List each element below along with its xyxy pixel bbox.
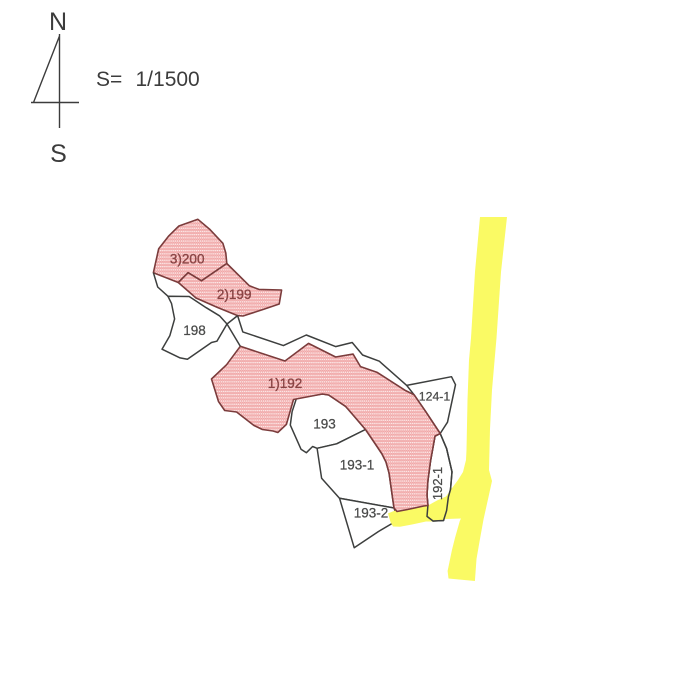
svg-text:124-1: 124-1 xyxy=(419,390,451,404)
svg-text:2)199: 2)199 xyxy=(217,287,252,302)
svg-text:198: 198 xyxy=(183,323,206,338)
svg-text:193: 193 xyxy=(313,417,336,432)
svg-text:192-1: 192-1 xyxy=(430,467,445,500)
svg-text:S: S xyxy=(50,140,67,168)
svg-text:S=1/1500: S=1/1500 xyxy=(96,68,200,91)
svg-text:3)200: 3)200 xyxy=(170,252,205,267)
svg-text:193-2: 193-2 xyxy=(354,506,389,521)
svg-text:1)192: 1)192 xyxy=(268,376,303,391)
svg-text:193-1: 193-1 xyxy=(340,458,375,473)
svg-text:N: N xyxy=(49,8,67,36)
